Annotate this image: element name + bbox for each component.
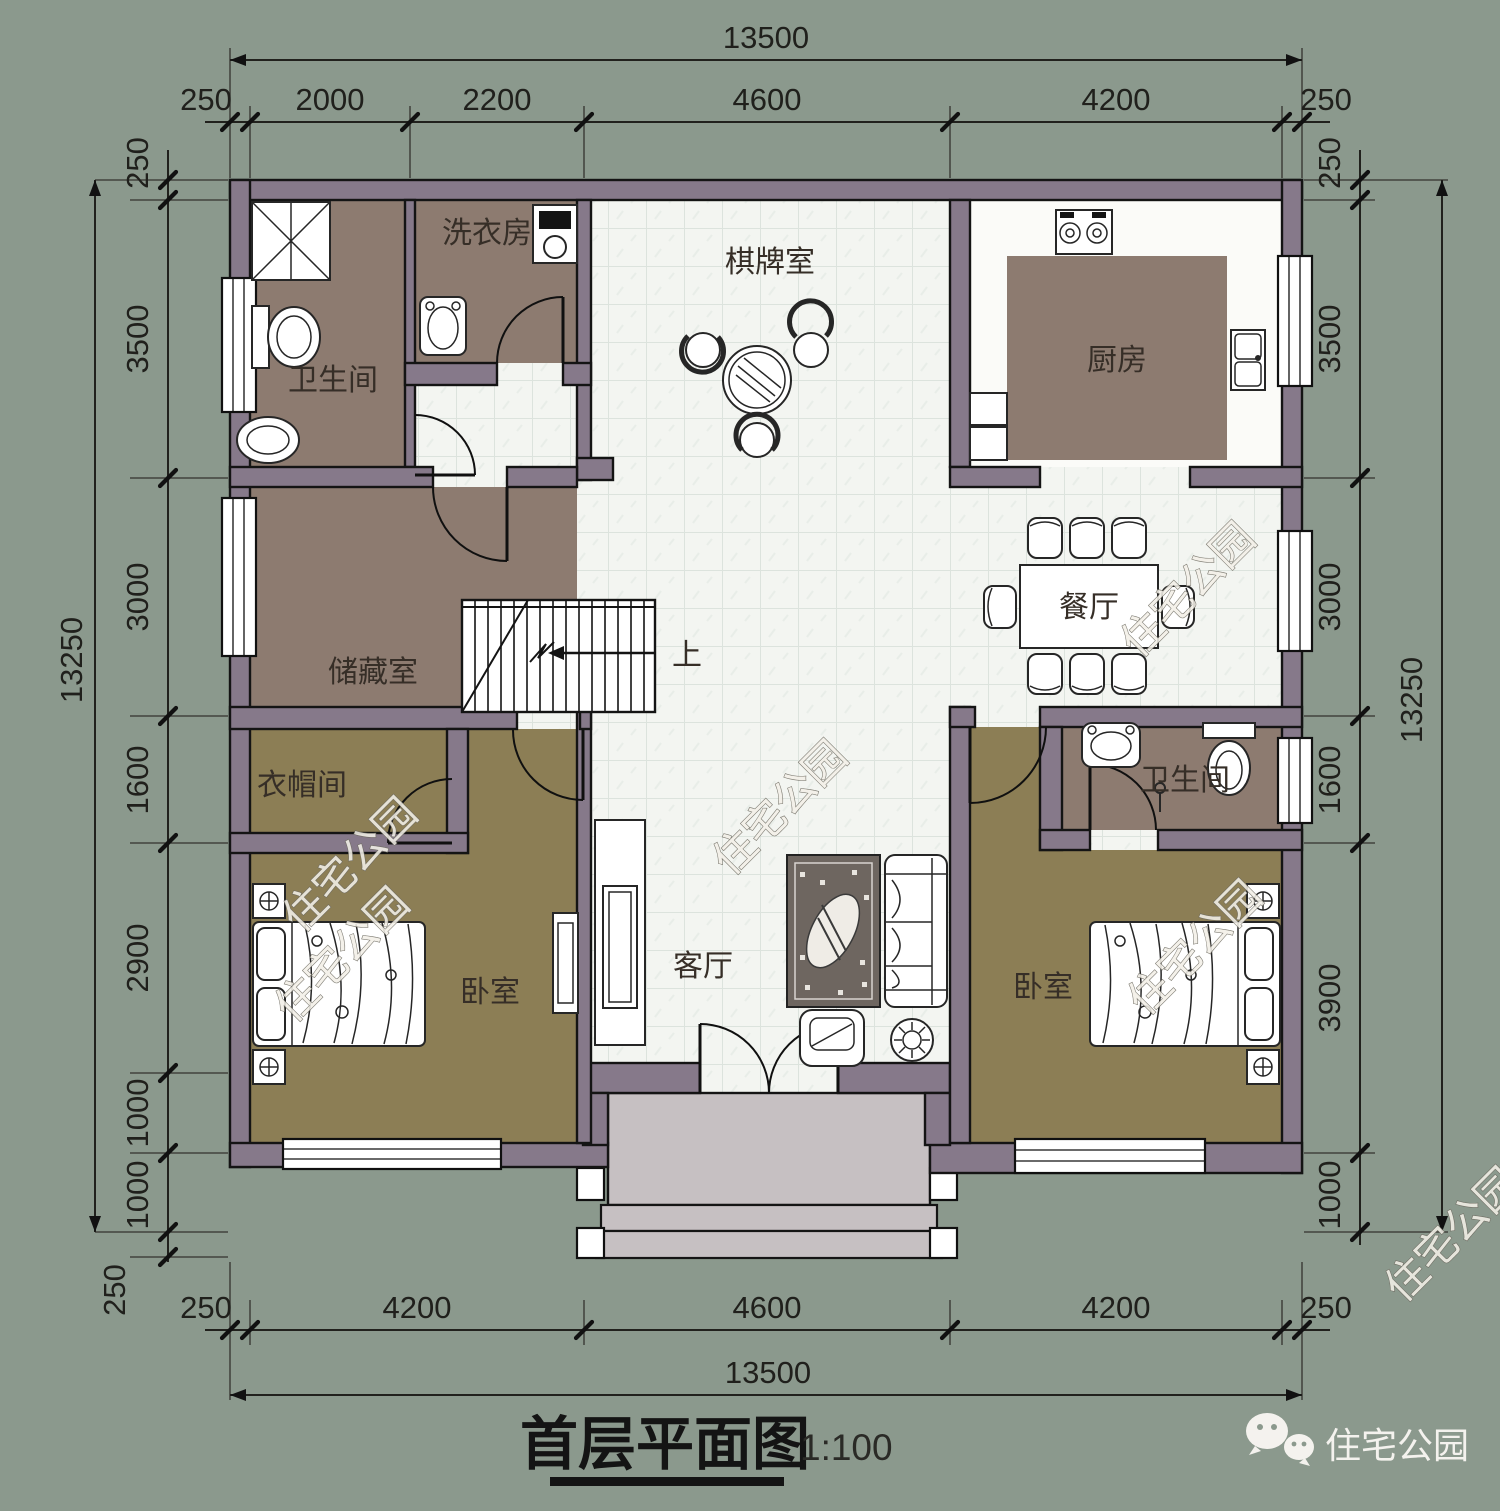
svg-text:1600: 1600 — [120, 746, 155, 815]
drawing-scale: 1:100 — [800, 1427, 893, 1468]
stairs-up-label: 上 — [672, 639, 702, 672]
svg-text:2900: 2900 — [120, 924, 155, 993]
room-label-kitchen: 厨房 — [1087, 344, 1147, 377]
wall-storage-top — [230, 467, 433, 487]
room-label-dining: 餐厅 — [1059, 591, 1119, 624]
wechat-brand-label: 住宅公园 — [1325, 1425, 1469, 1466]
entry-porch — [577, 1093, 957, 1258]
window — [222, 278, 256, 412]
title-underline — [550, 1477, 784, 1486]
porch-post — [577, 1228, 604, 1258]
room-label-bathroom-top: 卫生间 — [288, 364, 378, 397]
svg-text:250: 250 — [180, 1290, 232, 1325]
porch-post — [577, 1168, 604, 1200]
porch-step — [596, 1231, 942, 1258]
dining-chair — [984, 586, 1016, 628]
dining-chair — [1070, 654, 1104, 694]
svg-text:250: 250 — [120, 137, 155, 189]
bedroom-left-dresser — [553, 913, 578, 1013]
drawing-title: 首层平面图 — [520, 1412, 810, 1477]
svg-text:1000: 1000 — [120, 1161, 155, 1230]
svg-text:250: 250 — [180, 82, 232, 117]
room-label-bedroom-right: 卧室 — [1013, 971, 1073, 1004]
svg-text:4600: 4600 — [733, 82, 802, 117]
svg-text:1000: 1000 — [1312, 1161, 1347, 1230]
svg-text:3900: 3900 — [1312, 964, 1347, 1033]
svg-text:3500: 3500 — [120, 305, 155, 374]
svg-text:4200: 4200 — [383, 1290, 452, 1325]
window — [283, 1139, 501, 1169]
wall-kitchen-hall — [950, 200, 970, 467]
exterior-wall-top — [230, 180, 1302, 200]
window — [1278, 256, 1312, 386]
wall-dining-bottom — [1040, 707, 1302, 727]
dining-chair — [1070, 518, 1104, 558]
wall-laundry-bottom — [405, 363, 497, 385]
window — [1278, 738, 1312, 823]
window — [1015, 1139, 1205, 1173]
svg-text:1000: 1000 — [120, 1079, 155, 1148]
wall-laundry-hall — [577, 200, 591, 480]
svg-text:2000: 2000 — [296, 82, 365, 117]
room-label-bathroom-right: 卫生间 — [1140, 764, 1230, 797]
svg-text:1600: 1600 — [1312, 746, 1347, 815]
svg-text:3500: 3500 — [1312, 305, 1347, 374]
room-label-bedroom-left: 卧室 — [460, 976, 520, 1009]
pillow — [1245, 988, 1273, 1040]
tv-icon — [603, 886, 637, 1008]
svg-text:4200: 4200 — [1082, 82, 1151, 117]
toilet-icon — [1203, 723, 1255, 738]
window — [1278, 531, 1312, 651]
room-label-storage: 储藏室 — [328, 656, 418, 689]
svg-text:3000: 3000 — [1312, 563, 1347, 632]
pillow — [1245, 928, 1273, 980]
svg-text:250: 250 — [97, 1264, 132, 1316]
dining-chair — [1028, 654, 1062, 694]
pillow — [257, 928, 285, 980]
wall-kitchen-bottom — [950, 467, 1040, 487]
svg-text:4200: 4200 — [1082, 1290, 1151, 1325]
room-label-laundry: 洗衣房 — [442, 217, 532, 250]
porch-step — [601, 1205, 937, 1231]
svg-text:250: 250 — [1300, 82, 1352, 117]
dim-top-overall: 13500 — [723, 20, 809, 55]
svg-text:3000: 3000 — [120, 563, 155, 632]
svg-text:4600: 4600 — [733, 1290, 802, 1325]
wall-bedroomR-living — [950, 707, 970, 1143]
dim-bottom-overall: 13500 — [725, 1355, 811, 1390]
game-chair — [682, 333, 724, 372]
window — [222, 498, 256, 656]
living-south-wall — [583, 1063, 700, 1093]
toilet-icon — [252, 306, 269, 368]
wall-bath-laundry — [405, 200, 415, 467]
room-label-cloakroom: 衣帽间 — [257, 769, 347, 802]
svg-text:250: 250 — [1300, 1290, 1352, 1325]
room-label-living: 客厅 — [673, 950, 733, 983]
floor-plan-drawing: 上 — [0, 0, 1500, 1511]
dining-chair — [1028, 518, 1062, 558]
dim-right-overall: 13250 — [1394, 657, 1429, 743]
living-south-wall — [838, 1063, 950, 1093]
floor-plan-page: 上 — [0, 0, 1500, 1511]
porch-post — [930, 1228, 957, 1258]
dining-chair — [1112, 518, 1146, 558]
svg-text:250: 250 — [1312, 137, 1347, 189]
laundry-basin-icon — [420, 297, 466, 355]
dim-left-overall: 13250 — [54, 617, 89, 703]
wall-bathR-bottom — [1040, 830, 1090, 850]
room-label-game-room: 棋牌室 — [725, 246, 815, 279]
svg-text:2200: 2200 — [463, 82, 532, 117]
